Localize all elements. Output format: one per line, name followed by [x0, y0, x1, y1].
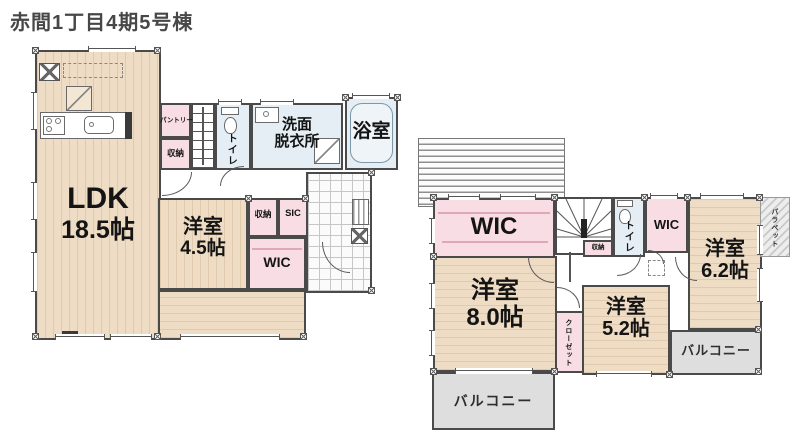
- post: [430, 253, 437, 260]
- post: [684, 194, 691, 201]
- window: [700, 193, 744, 199]
- post: [756, 194, 763, 201]
- post: [755, 326, 762, 333]
- post: [755, 368, 762, 375]
- label-balcony-right: バルコニー: [670, 344, 762, 359]
- label-yoshitsu-52: 洋室 5.2帖: [582, 296, 670, 341]
- window: [429, 330, 435, 356]
- floorplan-page: 赤間1丁目4期5号棟: [0, 0, 800, 448]
- label-wic-2f-main: WIC: [433, 214, 555, 241]
- door-arc-toilet-2f: [617, 254, 641, 276]
- label-balcony-left: バルコニー: [432, 394, 555, 410]
- roof-hatch: [418, 138, 565, 207]
- door-arc-yoshitsu-52: [557, 287, 580, 308]
- post: [666, 371, 673, 378]
- post: [641, 194, 648, 201]
- post: [551, 368, 558, 375]
- window: [455, 368, 533, 374]
- stairs-2f-arrow: [569, 252, 571, 282]
- label-wic-2f-sub: WIC: [645, 218, 688, 233]
- post: [430, 368, 437, 375]
- hanger-pipe: [442, 241, 548, 243]
- post: [430, 194, 437, 201]
- post: [551, 194, 558, 201]
- window: [596, 371, 652, 377]
- label-parapet: パラペット: [770, 204, 778, 252]
- window: [500, 194, 536, 200]
- floor2-plan: WIC 収納 トイレ WIC 洋室 6.2帖 パラペット 洋室 8.0帖 クロー…: [0, 0, 800, 448]
- toilet-tank-icon: [617, 200, 633, 207]
- label-yoshitsu-62: 洋室 6.2帖: [688, 238, 762, 283]
- window: [448, 194, 480, 200]
- label-closet-2f: クローゼット: [564, 316, 572, 370]
- label-yoshitsu-80: 洋室 8.0帖: [433, 278, 557, 332]
- window: [650, 193, 678, 199]
- label-toilet-2f: トイレ: [622, 216, 633, 256]
- label-storage-2f: 収納: [583, 244, 613, 251]
